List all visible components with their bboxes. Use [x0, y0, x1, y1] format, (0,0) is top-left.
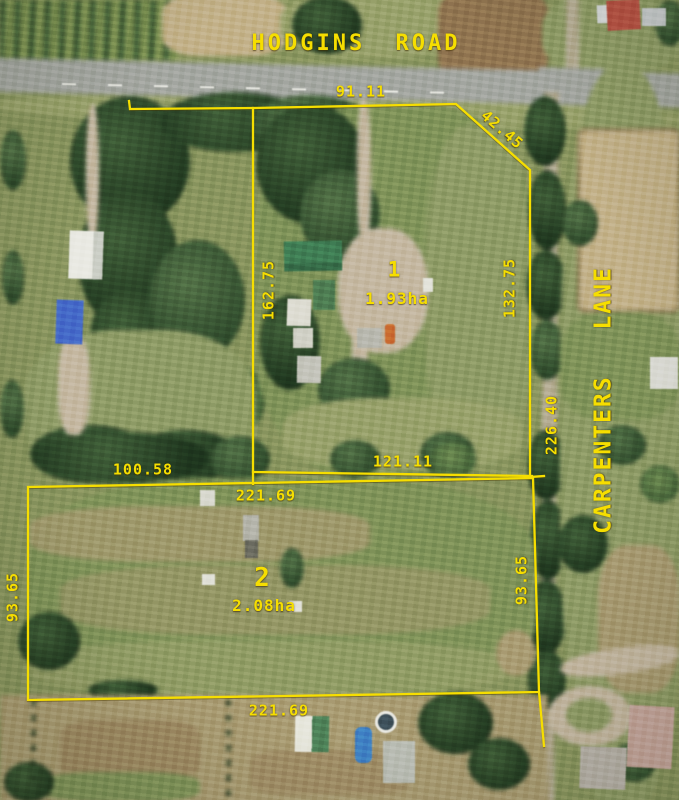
dim-lot2-east-side: 93.65 [515, 555, 530, 605]
dim-lot2-north-total: 221.69 [236, 489, 296, 504]
road-label-hodgins: HODGINS ROAD [252, 33, 461, 55]
dim-lot2-north-west-segment: 100.58 [113, 463, 173, 478]
lot1-number: 1 [388, 260, 401, 281]
road-label-carpenters: CARPENTERS LANE [593, 266, 616, 534]
labels-layer: HODGINS ROAD CARPENTERS LANE 91.11 42.45… [0, 0, 679, 800]
lot2-number: 2 [254, 565, 270, 591]
dim-lot1-east-side: 132.75 [503, 258, 518, 318]
dim-lot2-west-side: 93.65 [6, 572, 21, 622]
dim-lot1-north-frontage: 91.11 [336, 85, 386, 100]
dim-lot2-south-side: 221.69 [249, 704, 309, 719]
lot1-area: 1.93ha [365, 291, 429, 307]
dim-lot1-west-side: 162.75 [262, 260, 277, 320]
dim-lot1-south-side: 121.11 [373, 455, 433, 470]
dim-lot1-northeast-splay: 42.45 [478, 108, 526, 152]
dim-combined-lane-frontage: 226.40 [545, 395, 560, 455]
lot2-area: 2.08ha [232, 598, 296, 614]
aerial-cadastral-map: HODGINS ROAD CARPENTERS LANE 91.11 42.45… [0, 0, 679, 800]
